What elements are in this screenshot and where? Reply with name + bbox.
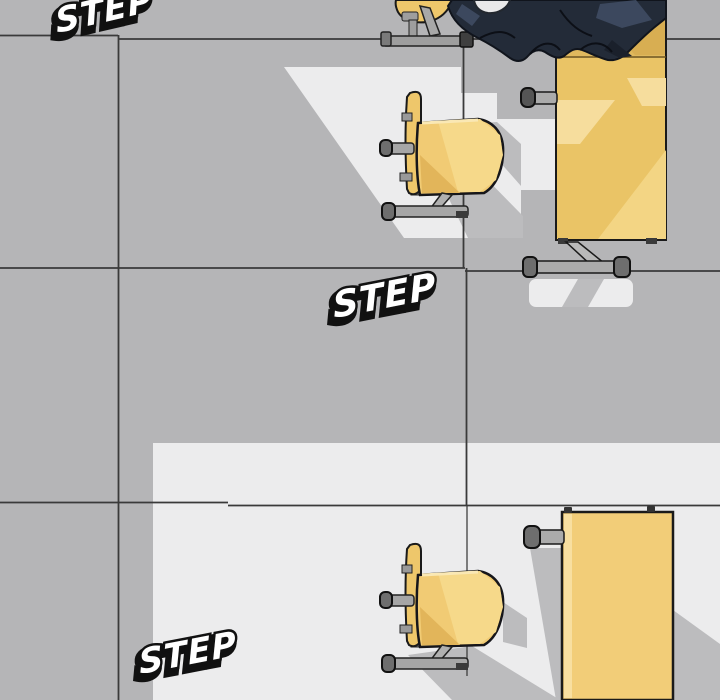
classroom-scene: STEP STEP STEP STEP STEP STEP (0, 0, 720, 700)
desk-bottom-leg (537, 530, 564, 544)
chair-top-foot-bar (384, 36, 470, 46)
desk-bottom-leg-cap (524, 526, 540, 548)
desk-bottom-nub (564, 507, 572, 513)
desk-bottom-surface (562, 512, 673, 700)
desk-leg-cap-left (521, 88, 535, 107)
chair-top-foot-nub (381, 32, 391, 46)
desk-bottom-nub (647, 506, 655, 512)
comic-panel: STEP STEP STEP STEP STEP STEP (0, 0, 720, 700)
desk-foot-nub (646, 238, 657, 244)
desk-foot-bar (530, 261, 626, 273)
desk-foot-cap-left (523, 257, 537, 277)
desk-bottom-edge-highlight (564, 514, 572, 698)
desk-foot-cap-right (614, 257, 630, 277)
